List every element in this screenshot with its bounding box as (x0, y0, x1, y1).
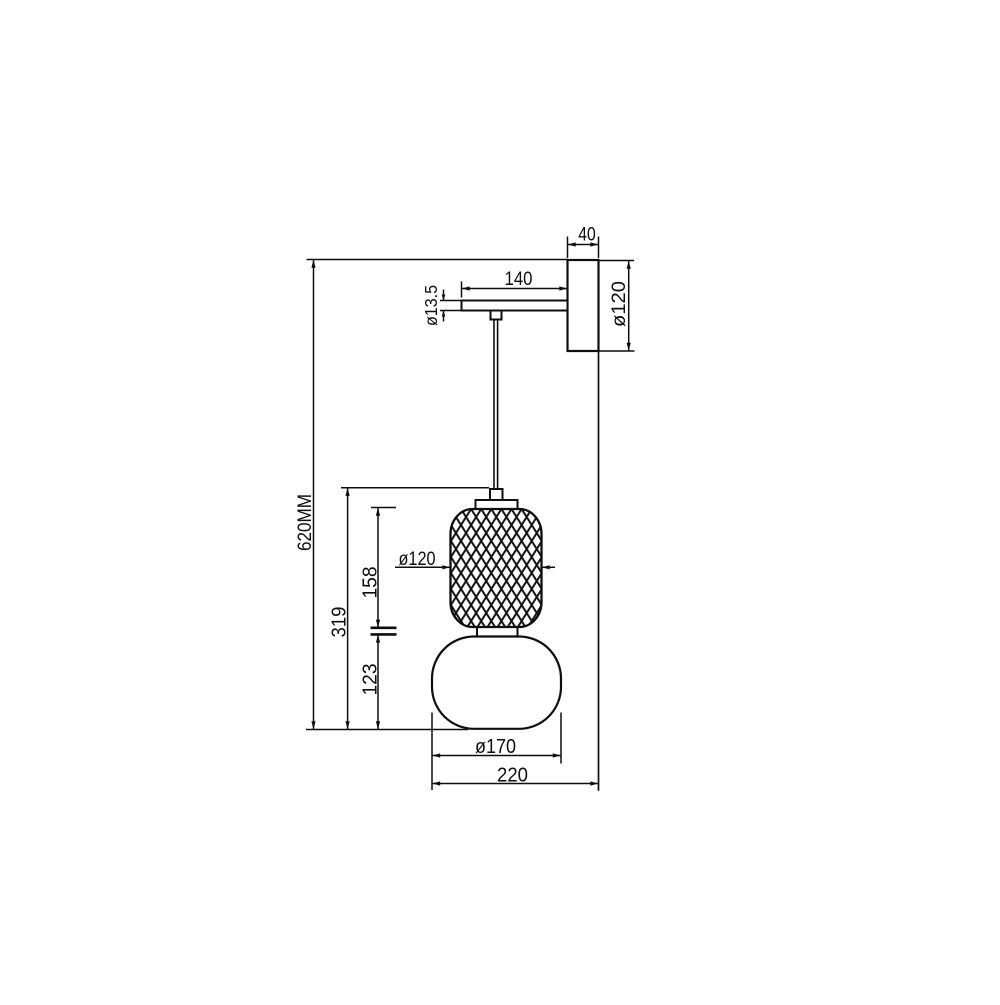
svg-text:40: 40 (578, 225, 596, 246)
svg-text:ø13.5: ø13.5 (421, 285, 441, 326)
svg-text:ø120: ø120 (399, 549, 436, 570)
svg-text:140: 140 (505, 268, 533, 290)
svg-text:620MM: 620MM (294, 494, 316, 551)
svg-text:ø170: ø170 (475, 736, 516, 758)
svg-text:123: 123 (360, 664, 382, 696)
svg-text:ø120: ø120 (608, 281, 630, 327)
svg-text:319: 319 (329, 607, 351, 638)
svg-text:158: 158 (360, 567, 382, 599)
svg-text:220: 220 (497, 765, 528, 787)
